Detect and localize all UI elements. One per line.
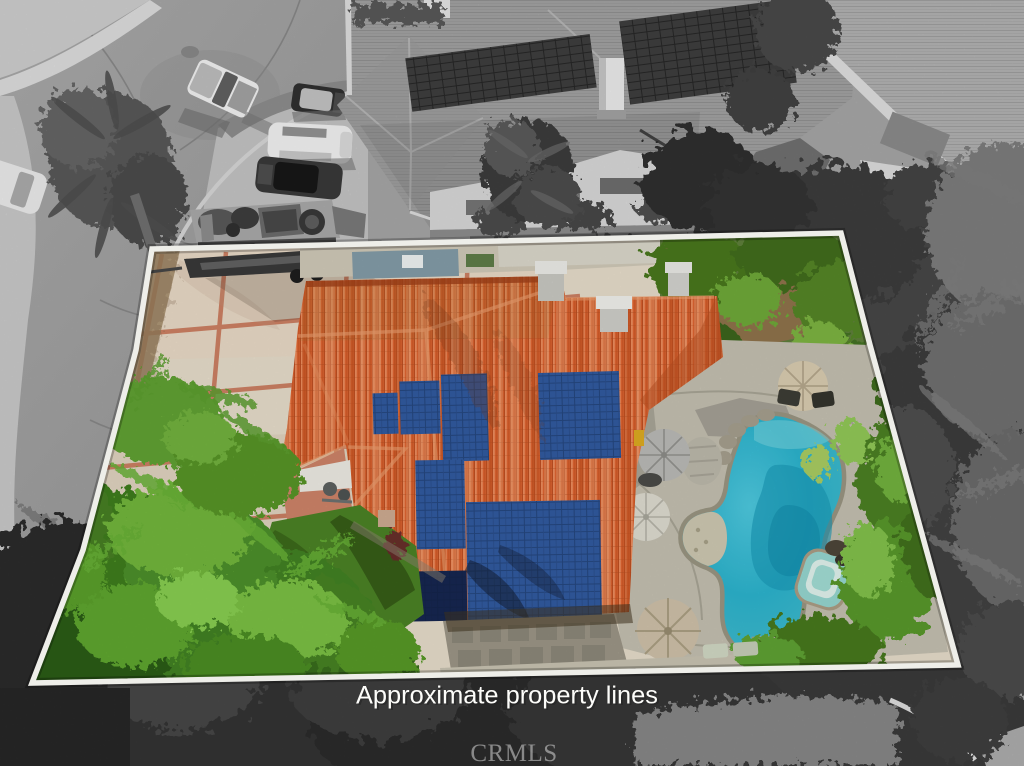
svg-text:Approximate property lines: Approximate property lines: [356, 682, 658, 710]
svg-text:CRMLS: CRMLS: [470, 740, 557, 766]
